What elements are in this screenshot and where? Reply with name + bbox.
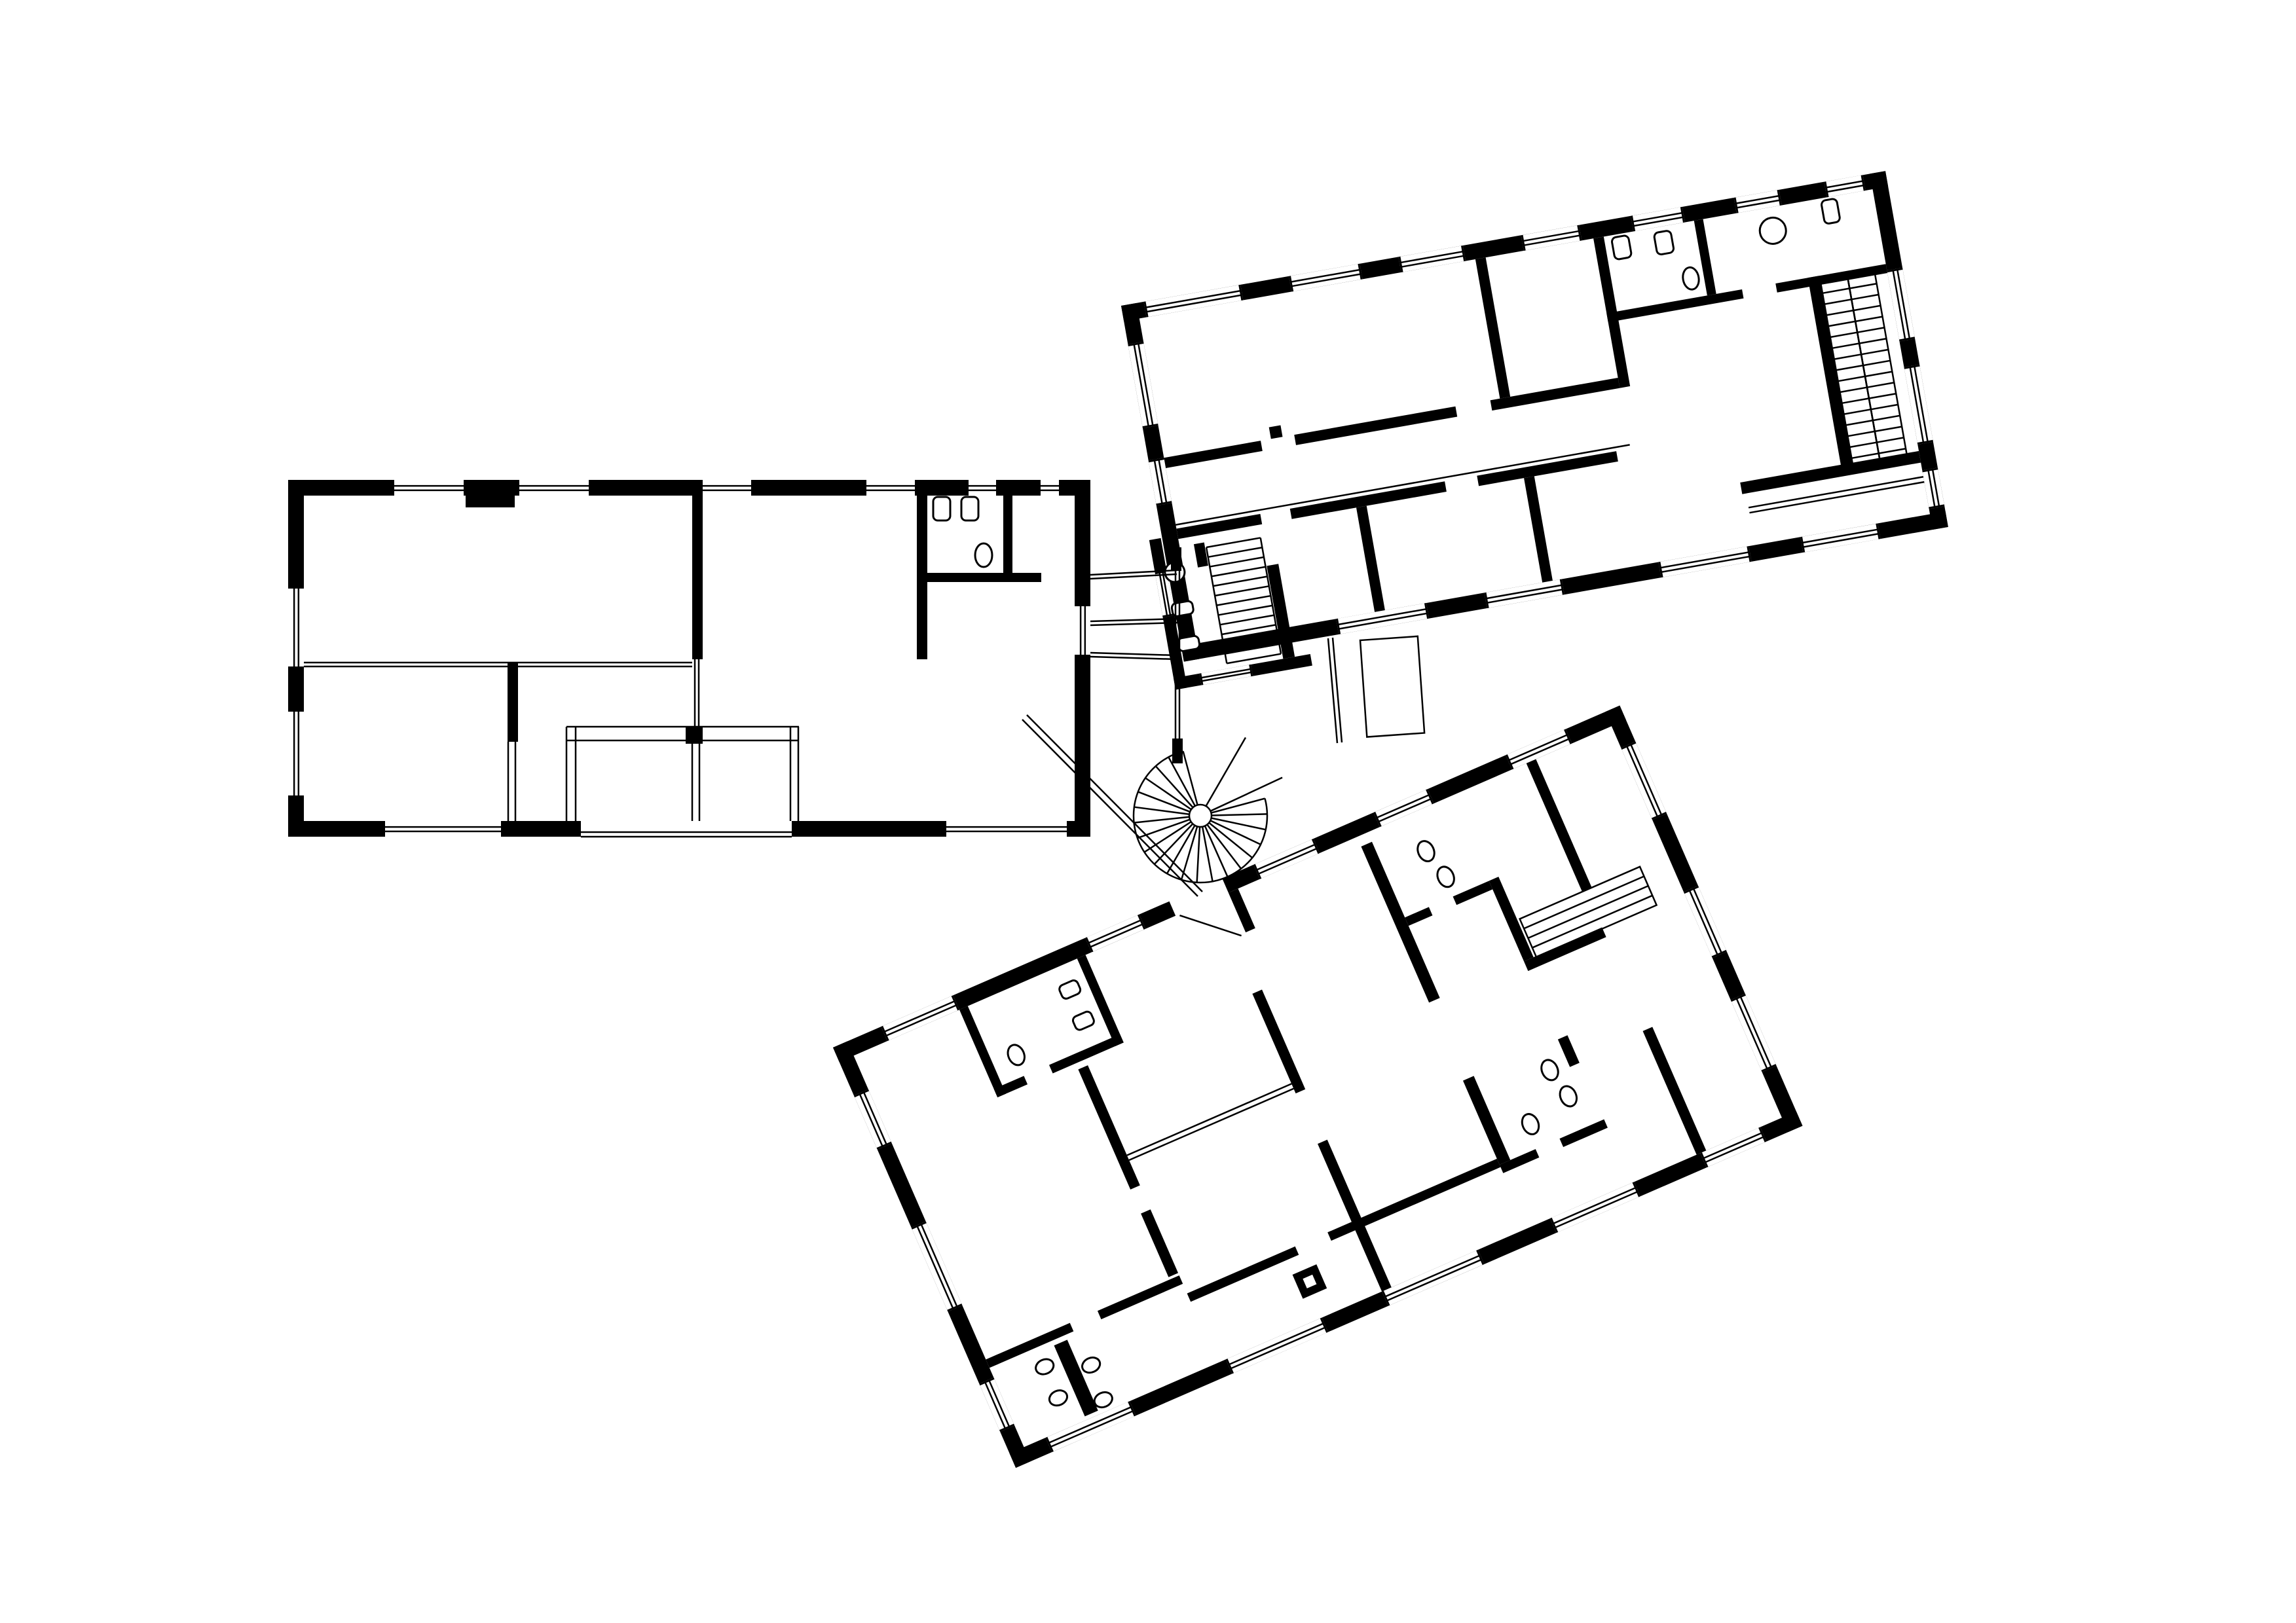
window-jamb	[383, 821, 385, 837]
wall-segment	[1269, 426, 1283, 439]
window-jamb	[501, 821, 503, 837]
toilet-icon	[1654, 230, 1675, 255]
spiral-stair-newel	[1189, 805, 1212, 827]
toilet-icon	[961, 497, 978, 520]
window	[383, 821, 503, 837]
wall-segment	[1075, 480, 1090, 837]
window-jamb	[517, 480, 519, 496]
walkway-stub	[1172, 739, 1183, 763]
window-jamb	[464, 480, 466, 496]
toilet-icon	[1177, 635, 1200, 651]
window-jamb	[589, 480, 591, 496]
window-jamb	[967, 480, 969, 496]
window-jamb	[288, 587, 304, 589]
window-jamb	[996, 480, 998, 496]
window-jamb	[288, 710, 304, 712]
toilet-icon	[1171, 600, 1194, 617]
toilet-icon	[1611, 235, 1632, 260]
west-wing-building	[288, 480, 1090, 837]
glass-band	[581, 821, 792, 837]
window-jamb	[288, 666, 304, 668]
window-jamb	[1039, 480, 1041, 496]
window	[864, 480, 917, 496]
window	[288, 587, 304, 668]
window	[288, 710, 304, 797]
floor-plan-page	[0, 0, 2296, 1623]
window-jamb	[1075, 655, 1090, 657]
window-jamb	[1059, 480, 1061, 496]
window	[517, 480, 591, 496]
wall-segment	[508, 662, 518, 742]
toilet-icon	[975, 543, 992, 567]
window-jamb	[864, 480, 866, 496]
window-jamb	[392, 480, 394, 496]
west-wing-floor	[288, 480, 1090, 837]
wall-segment	[466, 496, 515, 507]
walkway-stub	[1171, 547, 1181, 571]
window-jamb	[288, 795, 304, 797]
window	[1075, 604, 1090, 657]
toilet-icon	[1821, 198, 1840, 225]
window	[944, 821, 1069, 837]
window	[1039, 480, 1061, 496]
window-jamb	[944, 821, 946, 837]
wall-segment	[692, 496, 703, 659]
wall-segment	[917, 573, 1041, 582]
window	[701, 480, 753, 496]
window	[967, 480, 998, 496]
window-jamb	[1075, 604, 1090, 606]
wall-segment	[1003, 496, 1012, 581]
window-jamb	[701, 480, 703, 496]
window-jamb	[915, 480, 917, 496]
window-jamb	[1067, 821, 1069, 837]
floor-plan-canvas	[0, 0, 2296, 1623]
window-jamb	[751, 480, 753, 496]
window	[392, 480, 466, 496]
toilet-icon	[933, 497, 950, 520]
